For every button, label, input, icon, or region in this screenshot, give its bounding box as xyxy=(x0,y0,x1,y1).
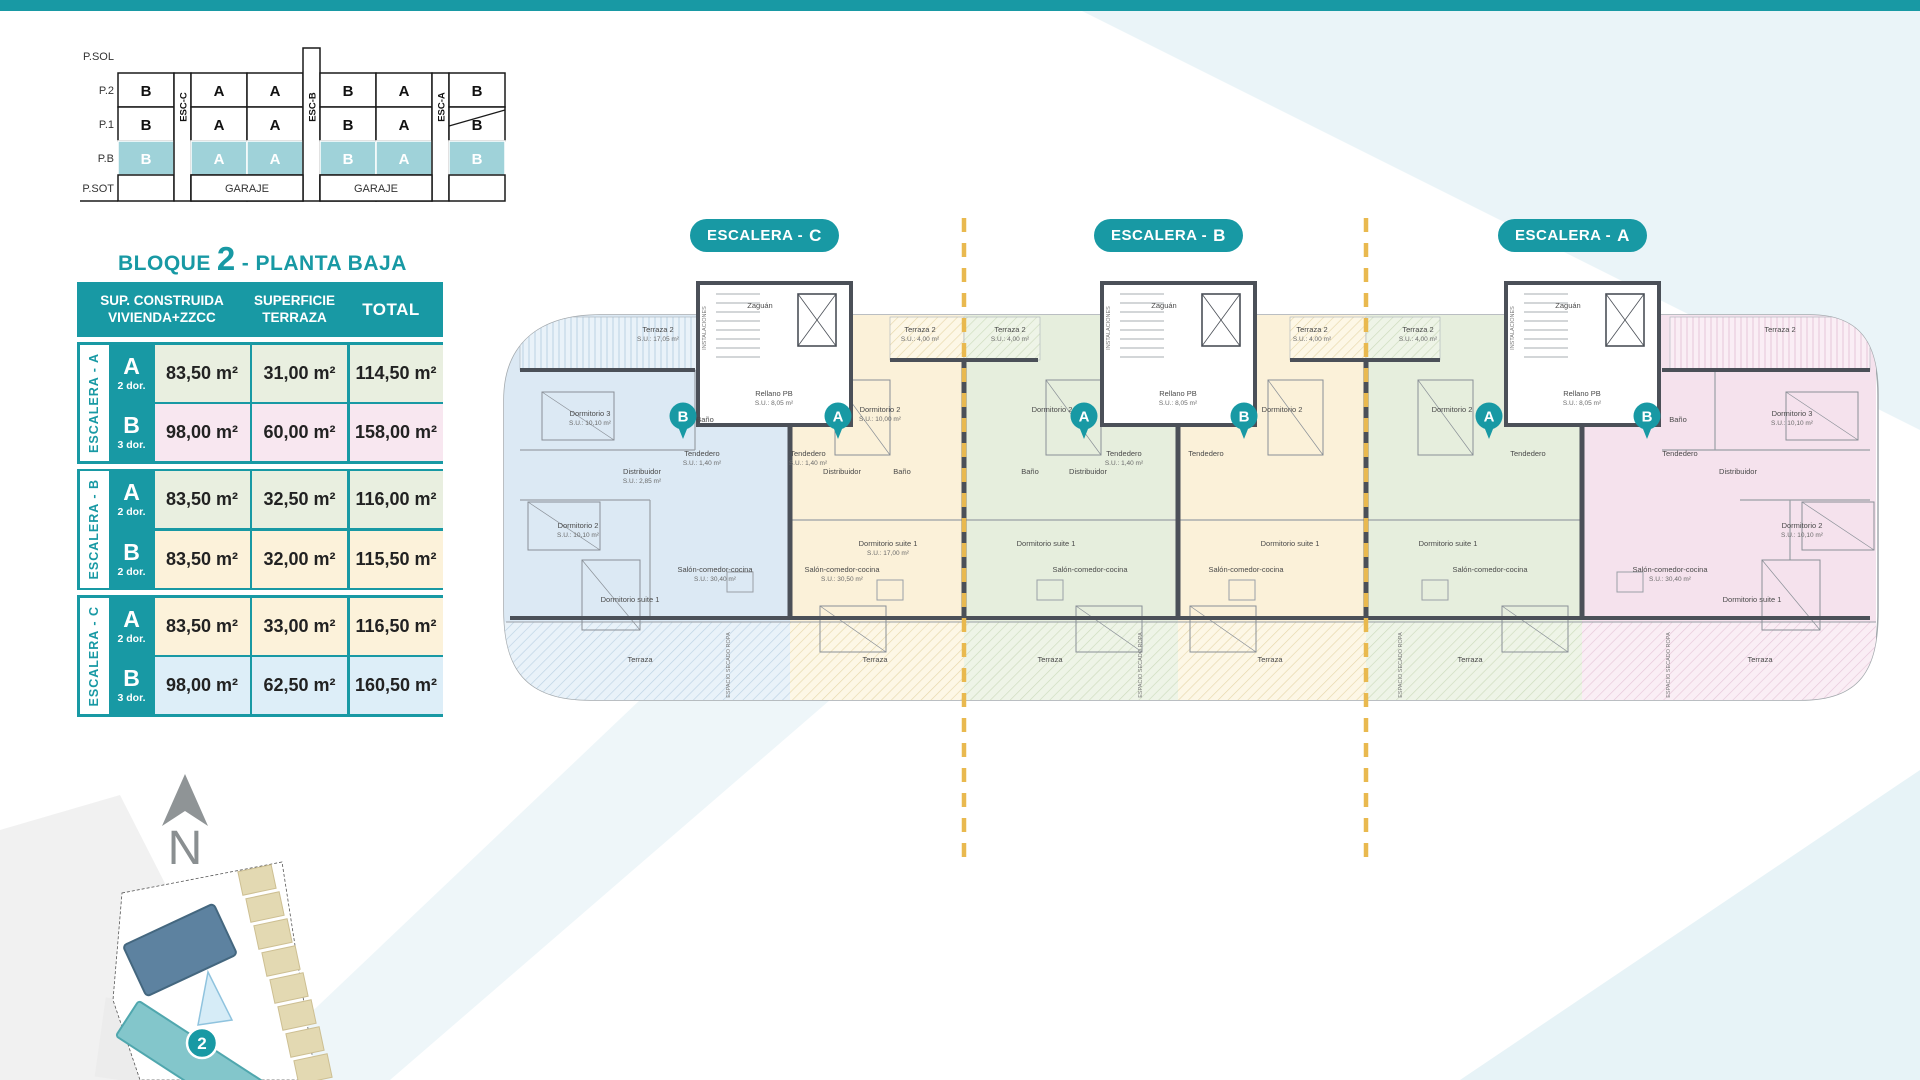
surface-value: 83,50 m² xyxy=(155,598,250,655)
label: INSTALACIONES xyxy=(1106,306,1112,350)
label: GARAJE xyxy=(354,183,398,195)
table-header-cell: SUPERFICIETERRAZA xyxy=(247,285,342,335)
label: Terraza xyxy=(627,655,653,664)
label: S.U.: 10,10 m² xyxy=(1781,532,1824,539)
label: Dormitorio suite 1 xyxy=(859,539,918,548)
label: Zaguán xyxy=(1555,301,1580,310)
terraza-label: Terraza xyxy=(862,655,888,664)
label: Dormitorio suite 1 xyxy=(1723,595,1782,604)
label: S.U.: 4,00 m² xyxy=(991,336,1030,343)
section-stair-column xyxy=(303,48,320,201)
surface-value: 160,50 m² xyxy=(350,657,443,714)
label: Distribuidor xyxy=(623,467,661,476)
label: S.U.: 1,40 m² xyxy=(683,460,722,467)
label: S.U.: 1,40 m² xyxy=(789,460,828,467)
stair-core: ZaguánRellano PBS.U.: 8,05 m²INSTALACION… xyxy=(1506,283,1659,425)
label: Dormitorio 3 xyxy=(1772,409,1813,418)
room-label: Salón-comedor-cocina xyxy=(1452,565,1528,574)
label: B xyxy=(343,117,354,134)
room-label: Distribuidor xyxy=(1719,467,1757,476)
label: Tendedero xyxy=(1662,449,1697,458)
label: Salón-comedor-cocina xyxy=(1208,565,1284,574)
label: Distribuidor xyxy=(1069,467,1107,476)
label: ESC-A xyxy=(437,92,448,122)
label: Dormitorio 2 xyxy=(860,405,901,414)
north-arrow-icon xyxy=(162,774,208,826)
terraza-label: Terraza xyxy=(1457,655,1483,664)
label: Baño xyxy=(893,467,911,476)
label: Terraza xyxy=(862,655,888,664)
label: B xyxy=(343,83,354,100)
label: Dormitorio 2 xyxy=(1782,521,1823,530)
terraza-label: Terraza xyxy=(1037,655,1063,664)
label: Dormitorio suite 1 xyxy=(1419,539,1478,548)
label: B xyxy=(141,83,152,100)
label: Distribuidor xyxy=(823,467,861,476)
label: Baño xyxy=(1669,415,1687,424)
group-label: ESCALERA - C xyxy=(80,598,109,715)
surface-value: 158,00 m² xyxy=(350,404,443,461)
secado-label: ESPACIO SECADO ROPA xyxy=(1398,632,1404,698)
label: Terraza xyxy=(1257,655,1283,664)
label: P.SOL xyxy=(83,51,114,63)
title-suffix: - PLANTA BAJA xyxy=(242,252,407,276)
label: A xyxy=(270,83,281,100)
label: Salón-comedor-cocina xyxy=(1452,565,1528,574)
label: ESC-C xyxy=(179,92,190,122)
label: Terraza 2 xyxy=(642,325,673,334)
surface-value: 60,00 m² xyxy=(252,404,347,461)
room-label: Baño xyxy=(893,467,911,476)
room-label: Dormitorio suite 1 xyxy=(1419,539,1478,548)
label: A xyxy=(214,151,225,168)
label: Tendedero xyxy=(684,449,719,458)
label: Zaguán xyxy=(1151,301,1176,310)
secado-label: ESPACIO SECADO ROPA xyxy=(1666,632,1672,698)
label: S.U.: 10,10 m² xyxy=(1771,420,1814,427)
secado-label: ESPACIO SECADO ROPA xyxy=(726,632,732,698)
label: Terraza 2 xyxy=(1296,325,1327,334)
label: Dormitorio 2 xyxy=(1432,405,1473,414)
label: Dormitorio 2 xyxy=(1262,405,1303,414)
label: S.U.: 8,05 m² xyxy=(755,400,794,407)
label: Dormitorio 3 xyxy=(570,409,611,418)
label: Distribuidor xyxy=(1719,467,1757,476)
label: INSTALACIONES xyxy=(1510,306,1516,350)
label: S.U.: 4,00 m² xyxy=(901,336,940,343)
section-stair-column xyxy=(174,73,191,201)
section-stair-column xyxy=(432,73,449,201)
title-block-number: 2 xyxy=(217,240,236,278)
room-label: Baño xyxy=(696,415,714,424)
title-prefix: BLOQUE xyxy=(118,252,211,276)
label: A xyxy=(1484,409,1495,426)
surface-value: 83,50 m² xyxy=(155,471,250,528)
surface-value: 33,00 m² xyxy=(252,598,347,655)
label: B xyxy=(472,83,483,100)
label: S.U.: 2,85 m² xyxy=(623,478,662,485)
label: Terraza 2 xyxy=(1764,325,1795,334)
table-header-cell: TOTAL xyxy=(345,285,438,335)
room-label: Distribuidor xyxy=(823,467,861,476)
unit-type-cell: A2 dor. xyxy=(111,598,152,655)
label: A xyxy=(399,83,410,100)
label: S.U.: 10,00 m² xyxy=(859,416,902,423)
unit-type-cell: B2 dor. xyxy=(111,531,152,588)
secado-label: ESPACIO SECADO ROPA xyxy=(1138,632,1144,698)
surface-value: 83,50 m² xyxy=(155,531,250,588)
room-label: Dormitorio 2 xyxy=(1262,405,1303,414)
terraza-label: Terraza xyxy=(1257,655,1283,664)
room-label: Dormitorio suite 1 xyxy=(1261,539,1320,548)
surface-value: 115,50 m² xyxy=(350,531,443,588)
label: B xyxy=(678,409,689,426)
surface-value: 98,00 m² xyxy=(155,404,250,461)
label: P.2 xyxy=(99,85,114,97)
label: S.U.: 30,40 m² xyxy=(1649,576,1692,583)
label: S.U.: 4,00 m² xyxy=(1399,336,1438,343)
label: S.U.: 1,40 m² xyxy=(1105,460,1144,467)
label: B xyxy=(1642,409,1653,426)
label: Terraza 2 xyxy=(904,325,935,334)
page-title: BLOQUE 2 - PLANTA BAJA xyxy=(118,240,407,278)
terraza-strip xyxy=(1582,622,1876,700)
label: A xyxy=(399,151,410,168)
label: S.U.: 30,40 m² xyxy=(694,576,737,583)
label: Dormitorio suite 1 xyxy=(601,595,660,604)
label: A xyxy=(399,117,410,134)
label: S.U.: 17,05 m² xyxy=(637,336,680,343)
stair-core: ZaguánRellano PBS.U.: 8,05 m²INSTALACION… xyxy=(698,283,851,425)
room-label: Baño xyxy=(1021,467,1039,476)
label: GARAJE xyxy=(225,183,269,195)
label: ESC-B xyxy=(308,92,319,122)
room-label: Tendedero xyxy=(1188,449,1223,458)
label: Rellano PB xyxy=(1563,389,1601,398)
group-label: ESCALERA - B xyxy=(80,471,109,588)
top-accent-bar xyxy=(0,0,1920,11)
label: INSTALACIONES xyxy=(702,306,708,350)
label: Salón-comedor-cocina xyxy=(1052,565,1128,574)
room-label: Salón-comedor-cocina xyxy=(1052,565,1128,574)
label: Terraza xyxy=(1457,655,1483,664)
room-label: Dormitorio 2 xyxy=(1032,405,1073,414)
label: Dormitorio 2 xyxy=(1032,405,1073,414)
room-label: Tendedero xyxy=(1662,449,1697,458)
surface-value: 116,00 m² xyxy=(350,471,443,528)
unit-type-cell: B3 dor. xyxy=(111,404,152,461)
label: Salón-comedor-cocina xyxy=(1632,565,1708,574)
label: B xyxy=(472,151,483,168)
label: A xyxy=(833,409,844,426)
label: Tendedero xyxy=(1106,449,1141,458)
surface-value: 98,00 m² xyxy=(155,657,250,714)
room-label: Tendedero xyxy=(1510,449,1545,458)
site-location-map: 2 xyxy=(90,860,430,1080)
block-number-badge: 2 xyxy=(187,1028,217,1058)
label: A xyxy=(214,83,225,100)
room-label: Salón-comedor-cocina xyxy=(1208,565,1284,574)
label: Baño xyxy=(1021,467,1039,476)
room-label: Baño xyxy=(1669,415,1687,424)
label: Salón-comedor-cocina xyxy=(804,565,880,574)
room-label: Distribuidor xyxy=(1069,467,1107,476)
label: S.U.: 4,00 m² xyxy=(1293,336,1332,343)
label: Dormitorio suite 1 xyxy=(1261,539,1320,548)
label: S.U.: 17,00 m² xyxy=(867,550,910,557)
table-group-b: ESCALERA - BA2 dor.83,50 m²32,50 m²116,0… xyxy=(77,469,443,591)
room-label: Terraza 2 xyxy=(1764,325,1795,334)
terraza-label: Terraza xyxy=(1747,655,1773,664)
building-section-diagram: P.SOLP.2P.1P.BP.SOTBBBESC-CAAAAAAESC-BBB… xyxy=(70,40,520,212)
label: P.1 xyxy=(99,119,114,131)
label: Tendedero xyxy=(1188,449,1223,458)
terraza-strip xyxy=(964,622,1178,700)
brochure-page: P.SOLP.2P.1P.BP.SOTBBBESC-CAAAAAAESC-BBB… xyxy=(0,0,1920,1080)
label: Dormitorio suite 1 xyxy=(1017,539,1076,548)
label: Zaguán xyxy=(747,301,772,310)
surface-value: 31,00 m² xyxy=(252,345,347,402)
room-label: Dormitorio suite 1 xyxy=(601,595,660,604)
surface-value: 32,00 m² xyxy=(252,531,347,588)
surface-table: SUP. CONSTRUIDAVIVIENDA+ZZCCSUPERFICIETE… xyxy=(77,282,443,722)
label: S.U.: 30,50 m² xyxy=(821,576,864,583)
label: A xyxy=(214,117,225,134)
label: Tendedero xyxy=(1510,449,1545,458)
label: A xyxy=(270,117,281,134)
room-label: Dormitorio 2 xyxy=(1432,405,1473,414)
label: Tendedero xyxy=(790,449,825,458)
label: Salón-comedor-cocina xyxy=(677,565,753,574)
label: Baño xyxy=(696,415,714,424)
surface-value: 62,50 m² xyxy=(252,657,347,714)
label: P.SOT xyxy=(82,183,114,195)
label: Terraza 2 xyxy=(994,325,1025,334)
label: Terraza xyxy=(1037,655,1063,664)
north-arrow: N xyxy=(145,772,235,872)
floor-plan: ZaguánRellano PBS.U.: 8,05 m²INSTALACION… xyxy=(490,210,1890,880)
group-label: ESCALERA - A xyxy=(80,345,109,462)
label: S.U.: 10,10 m² xyxy=(557,532,600,539)
label: A xyxy=(1079,409,1090,426)
label: 2 xyxy=(197,1034,206,1053)
table-group-c: ESCALERA - CA2 dor.83,50 m²33,00 m²116,5… xyxy=(77,595,443,717)
label: S.U.: 8,05 m² xyxy=(1563,400,1602,407)
table-header-cell: SUP. CONSTRUIDAVIVIENDA+ZZCC xyxy=(80,285,245,335)
surface-value: 116,50 m² xyxy=(350,598,443,655)
unit-type-cell: B3 dor. xyxy=(111,657,152,714)
surface-value: 114,50 m² xyxy=(350,345,443,402)
terraza-label: Terraza xyxy=(627,655,653,664)
label: Terraza xyxy=(1747,655,1773,664)
room-label: Dormitorio suite 1 xyxy=(1723,595,1782,604)
label: B xyxy=(141,117,152,134)
label: B xyxy=(343,151,354,168)
stair-core: ZaguánRellano PBS.U.: 8,05 m²INSTALACION… xyxy=(1102,283,1255,425)
label: Terraza 2 xyxy=(1402,325,1433,334)
label: Rellano PB xyxy=(1159,389,1197,398)
surface-value: 32,50 m² xyxy=(252,471,347,528)
unit-type-cell: A2 dor. xyxy=(111,471,152,528)
label: S.U.: 8,05 m² xyxy=(1159,400,1198,407)
label: Rellano PB xyxy=(755,389,793,398)
room-label: Dormitorio suite 1 xyxy=(1017,539,1076,548)
table-group-a: ESCALERA - AA2 dor.83,50 m²31,00 m²114,5… xyxy=(77,342,443,464)
label: B xyxy=(1239,409,1250,426)
label: Dormitorio 2 xyxy=(558,521,599,530)
surface-value: 83,50 m² xyxy=(155,345,250,402)
table-header: SUP. CONSTRUIDAVIVIENDA+ZZCCSUPERFICIETE… xyxy=(77,282,443,337)
label: A xyxy=(270,151,281,168)
label: S.U.: 10,10 m² xyxy=(569,420,612,427)
label: B xyxy=(141,151,152,168)
unit-type-cell: A2 dor. xyxy=(111,345,152,402)
label: P.B xyxy=(98,153,114,165)
